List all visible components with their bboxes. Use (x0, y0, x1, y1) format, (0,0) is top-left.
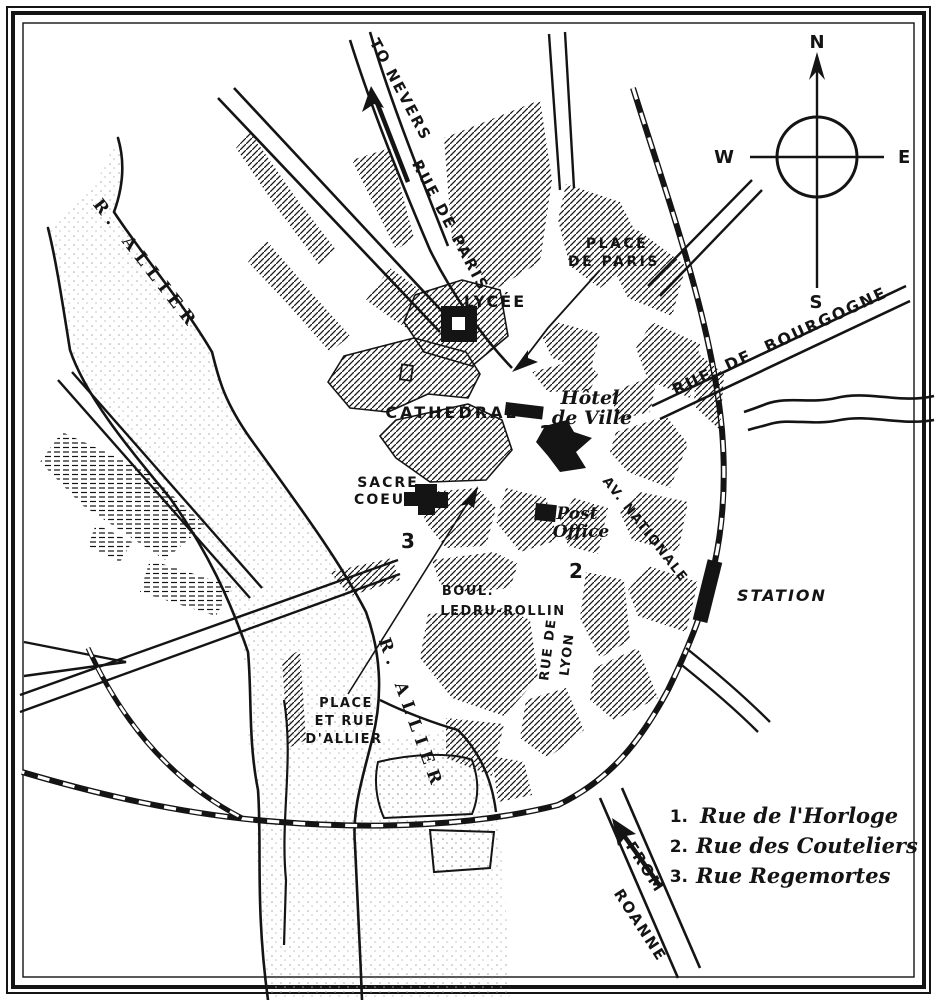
legend-3-num: 3. (670, 867, 688, 887)
compass-n: N (809, 32, 824, 53)
rue-de-lyon-label-1: RUE DE (537, 618, 560, 682)
post-office-label-2: Office (553, 522, 610, 542)
sacre-coeur-label-2: COEUR (354, 492, 418, 508)
to-nevers-label: TO NEVERS (366, 35, 435, 143)
cathedral-label: CATHEDRAL (385, 403, 518, 422)
legend: 1. Rue de l'Horloge 2. Rue des Coutelier… (670, 803, 918, 888)
place-allier-label-1: PLACE (319, 696, 373, 711)
post-office-label-1: Post (555, 504, 597, 524)
north-road (549, 32, 574, 190)
southeast-road (678, 648, 770, 732)
legend-1-num: 1. (670, 807, 688, 827)
legend-1-name: Rue de l'Horloge (699, 803, 898, 828)
compass-s: S (810, 292, 823, 313)
place-de-paris-label-2: DE PARIS (568, 254, 660, 270)
place-allier-label-2: ET RUE (315, 714, 376, 729)
place-de-paris-leader-arrow (512, 350, 538, 372)
compass-rose: N S W E (714, 32, 910, 313)
east-stream (744, 395, 934, 430)
station-building (693, 559, 723, 623)
legend-3-name: Rue Regemortes (695, 863, 891, 888)
ledru-rollin-label: LEDRU-ROLLIN (440, 604, 565, 619)
place-de-paris-label-1: PLACE (586, 236, 648, 252)
lycee-building (441, 306, 477, 342)
city-map: N S W E TO NEVERS RUE DE PARIS RUE DE BO… (0, 0, 937, 1000)
hotel-de-ville-label-2: de Ville (552, 407, 632, 429)
marker-3: 3 (401, 529, 415, 553)
compass-w: W (714, 147, 734, 168)
lycee-label: LYCÉE (464, 292, 526, 311)
sacre-coeur-label-1: SACRE (357, 475, 419, 491)
place-allier-label-3: D'ALLIER (305, 732, 382, 747)
from-roanne-label-2: ROANNE (610, 886, 670, 965)
hotel-de-ville-label-1: Hôtel (560, 387, 620, 409)
legend-2-name: Rue des Couteliers (695, 833, 918, 858)
boul-label: BOUL. (442, 584, 494, 599)
map-page: N S W E TO NEVERS RUE DE PARIS RUE DE BO… (0, 0, 937, 1000)
compass-e: E (898, 147, 910, 168)
marker-1: 1 (539, 421, 553, 445)
east-shore-patch (492, 756, 532, 802)
post-office-building (534, 503, 557, 522)
sandbank-lower (430, 830, 494, 872)
marker-2: 2 (569, 559, 583, 583)
legend-2-num: 2. (670, 837, 688, 857)
rue-de-lyon-label-2: LYON (557, 632, 577, 677)
rue-de-bourgogne-label: RUE DE BOURGOGNE (669, 283, 890, 399)
station-label: STATION (737, 586, 827, 605)
